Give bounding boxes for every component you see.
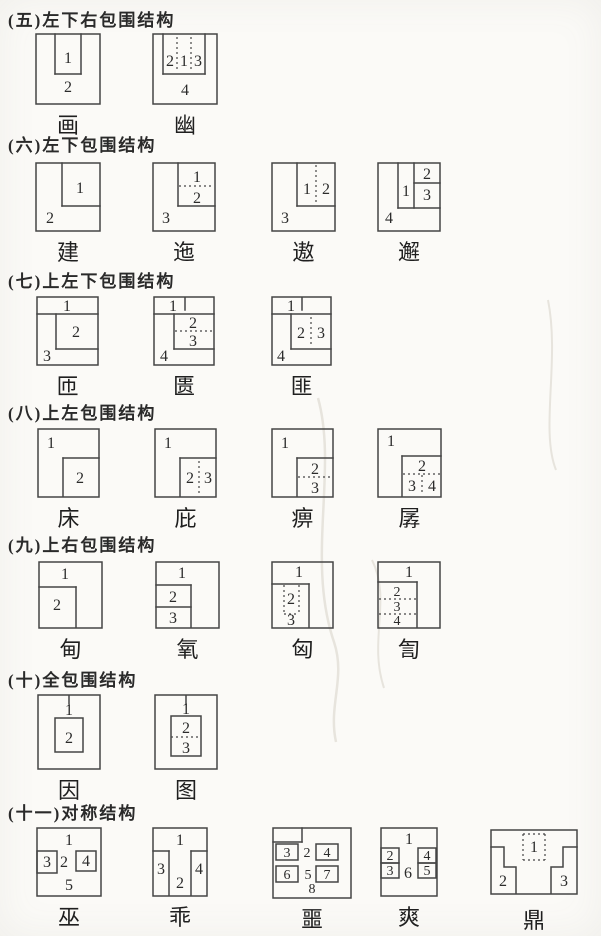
structure-figure: 1 2 甸	[38, 561, 103, 664]
section-title: (六)左下包围结构	[8, 131, 156, 156]
part-label: 4	[394, 614, 401, 629]
part-label: 2	[311, 461, 319, 478]
structure-diagram: 1 2	[37, 694, 101, 770]
structure-diagram: 1 3 4 2	[152, 827, 208, 897]
section-title: (八)上左包围结构	[8, 399, 156, 424]
section-title: (七)上左下包围结构	[8, 267, 175, 292]
part-label: 1	[65, 702, 73, 719]
structure-diagram: 2 1 3 4	[152, 33, 218, 105]
part-label: 3	[43, 854, 51, 871]
structure-figure: 1 2 3 匝	[36, 296, 99, 401]
part-label: 3	[560, 873, 568, 890]
part-label: 2	[499, 873, 507, 890]
part-label: 2	[64, 79, 72, 96]
structure-diagram: 1 2	[35, 162, 101, 232]
part-label: 3	[182, 740, 190, 757]
structure-diagram: 1 2 3	[271, 162, 336, 232]
part-label: 3	[43, 348, 51, 365]
structure-figure: 1 2 3 遨	[271, 162, 336, 267]
part-label: 1	[402, 183, 410, 200]
part-label: 2	[72, 324, 80, 341]
example-character: 建	[35, 235, 101, 267]
section-title: (九)上右包围结构	[8, 531, 156, 556]
outer-box	[39, 562, 102, 628]
structure-figure: 1 2 3 鼎	[490, 829, 578, 935]
part-label: 1	[405, 564, 413, 581]
example-character: 爽	[380, 900, 438, 932]
structure-figure: 1 2 3 4 匮	[153, 296, 215, 401]
part-label: 2	[65, 730, 73, 747]
structure-figure: 1 2 3 4 匪	[271, 296, 332, 401]
part-label: 3	[284, 846, 291, 861]
example-character: 乖	[152, 900, 208, 932]
part-label: 1	[61, 566, 69, 583]
structure-figure: 1 2 因	[37, 694, 101, 805]
structure-figure: 1 2 3 图	[154, 694, 218, 805]
part-label: 1	[281, 435, 289, 452]
part-label: 4	[82, 853, 90, 870]
part-label: 3	[194, 53, 202, 70]
structure-diagram: 1 2 3	[271, 561, 334, 629]
example-character: 甸	[38, 632, 103, 664]
part-label: 3	[317, 325, 325, 342]
part-label: 3	[387, 864, 394, 879]
structure-figure: 1 3 2 4 5 巫	[36, 827, 102, 932]
example-character: 匮	[153, 369, 215, 401]
part-label: 2	[186, 470, 194, 487]
structure-figure: 1 2 3 匈	[271, 561, 334, 664]
example-character: 迤	[152, 235, 216, 267]
structure-diagram: 1 2 3	[152, 162, 216, 232]
part-label: 1	[176, 832, 184, 849]
part-label: 3	[157, 861, 165, 878]
part-label: 4	[424, 849, 431, 864]
part-label: 1	[64, 50, 72, 67]
structure-diagram: 1 2	[37, 428, 100, 498]
part-label: 2	[169, 589, 177, 606]
part-label: 1	[180, 53, 188, 70]
part-label: 5	[305, 868, 312, 883]
structure-diagram: 1 2 3 4	[377, 162, 441, 232]
part-label: 1	[193, 169, 201, 186]
part-label: 2	[189, 315, 197, 332]
part-label: 4	[195, 861, 203, 878]
example-character: 匪	[271, 369, 332, 401]
part-label: 2	[76, 470, 84, 487]
structure-diagram: 1 2 3	[154, 694, 218, 770]
structure-figure: 1 2 3 痹	[271, 428, 334, 533]
example-character: 匝	[36, 369, 99, 401]
part-label: 5	[424, 864, 431, 879]
smudge-line	[548, 300, 556, 470]
part-label: 2	[322, 181, 330, 198]
example-character: 庇	[154, 501, 217, 533]
structure-diagram: 1 2 3 4	[271, 296, 332, 366]
structure-figure: 1 2 3 4 訇	[377, 561, 441, 664]
part-label: 6	[404, 865, 412, 882]
structure-figure: 1 3 4 2 乖	[152, 827, 208, 932]
example-character: 匈	[271, 632, 334, 664]
structure-diagram: 1 2	[38, 561, 103, 629]
part-label: 2	[418, 458, 426, 475]
part-label: 3	[311, 480, 319, 497]
outer-box	[156, 562, 219, 628]
example-character: 邂	[377, 235, 441, 267]
part-label: 2	[423, 166, 431, 183]
part-label: 2	[60, 854, 68, 871]
part-label: 3	[394, 600, 401, 615]
part-label: 2	[182, 720, 190, 737]
example-character: 訇	[377, 632, 441, 664]
part-label: 2	[53, 597, 61, 614]
part-label: 4	[385, 210, 393, 227]
structure-figure: 1 2 3 4 5 6 爽	[380, 827, 438, 932]
structure-diagram: 1 2	[35, 33, 101, 105]
part-label: 1	[169, 298, 177, 315]
part-label: 1	[387, 433, 395, 450]
structure-diagram: 1 2 3	[36, 296, 99, 366]
structure-diagram: 1 3 2 4 5	[36, 827, 102, 897]
part-label: 3	[204, 470, 212, 487]
part-label: 2	[387, 849, 394, 864]
structure-figure: 1 2 3 4 邂	[377, 162, 441, 267]
part-label: 1	[76, 180, 84, 197]
structure-figure: 1 2 3 迤	[152, 162, 216, 267]
part-label: 1	[47, 435, 55, 452]
structure-diagram: 1 2 3 4	[153, 296, 215, 366]
structure-figure: 1 2 3 氧	[155, 561, 220, 664]
part-label: 4	[277, 348, 285, 365]
part-label: 8	[309, 882, 316, 897]
structure-diagram: 1 2 3 4	[377, 561, 441, 629]
part-label: 5	[65, 877, 73, 894]
structure-figure: 1 2 3 4 孱	[377, 428, 442, 533]
part-label: 1	[530, 839, 538, 856]
part-label: 3	[189, 333, 197, 350]
structure-figure: 1 2 建	[35, 162, 101, 267]
part-label: 2	[176, 875, 184, 892]
part-label: 2	[394, 585, 401, 600]
example-character: 图	[154, 773, 218, 805]
example-character: 幽	[152, 108, 218, 140]
part-label: 2	[166, 53, 174, 70]
part-label: 3	[287, 612, 295, 629]
part-label: 6	[284, 868, 291, 883]
example-character: 孱	[377, 501, 442, 533]
structure-figure: 1 2 3 庇	[154, 428, 217, 533]
part-label: 2	[46, 210, 54, 227]
structure-diagram: 1 2 3 4 5 6	[380, 827, 438, 897]
example-character: 鼎	[490, 903, 578, 935]
section-title: (十一)对称结构	[8, 799, 137, 824]
part-label: 3	[408, 478, 416, 495]
part-label: 2	[297, 325, 305, 342]
structure-diagram: 1 2 3	[155, 561, 220, 629]
structure-diagram: 1 2 3	[271, 428, 334, 498]
part-label: 2	[304, 846, 311, 861]
part-label: 1	[65, 832, 73, 849]
part-label: 4	[181, 82, 189, 99]
structure-figure: 2 1 3 4 幽	[152, 33, 218, 140]
structure-diagram: 1 2 3 4	[377, 428, 442, 498]
structure-figure: 1 2 画	[35, 33, 101, 140]
scanned-textbook-page: (五)左下右包围结构 1 2 画 2 1 3 4 幽 (六)左下包围结构	[0, 0, 601, 936]
part-label: 3	[162, 210, 170, 227]
part-label: 2	[287, 591, 295, 608]
part-label: 3	[281, 210, 289, 227]
part-label: 1	[182, 701, 190, 718]
structure-diagram: 3 2 4 6 5 7 8	[272, 827, 352, 899]
part-label: 1	[405, 831, 413, 848]
example-character: 巫	[36, 900, 102, 932]
part-label: 1	[295, 564, 303, 581]
structure-diagram: 1 2 3	[154, 428, 217, 498]
example-character: 氧	[155, 632, 220, 664]
example-character: 噩	[272, 902, 352, 934]
part-label: 3	[169, 610, 177, 627]
structure-figure: 3 2 4 6 5 7 8 噩	[272, 827, 352, 934]
part-label: 3	[423, 187, 431, 204]
part-label: 1	[303, 181, 311, 198]
example-character: 遨	[271, 235, 336, 267]
structure-diagram: 1 2 3	[490, 829, 578, 895]
structure-figure: 1 2 床	[37, 428, 100, 533]
section-title: (十)全包围结构	[8, 666, 137, 691]
part-label: 1	[178, 565, 186, 582]
example-character: 床	[37, 501, 100, 533]
part-label: 7	[324, 868, 331, 883]
part-label: 2	[193, 190, 201, 207]
part-label: 1	[63, 298, 71, 315]
part-label: 1	[287, 298, 295, 315]
part-label: 1	[164, 435, 172, 452]
part-label: 4	[160, 348, 168, 365]
part-label: 4	[428, 478, 436, 495]
example-character: 痹	[271, 501, 334, 533]
section-title: (五)左下右包围结构	[8, 6, 175, 31]
part-label: 4	[324, 846, 331, 861]
